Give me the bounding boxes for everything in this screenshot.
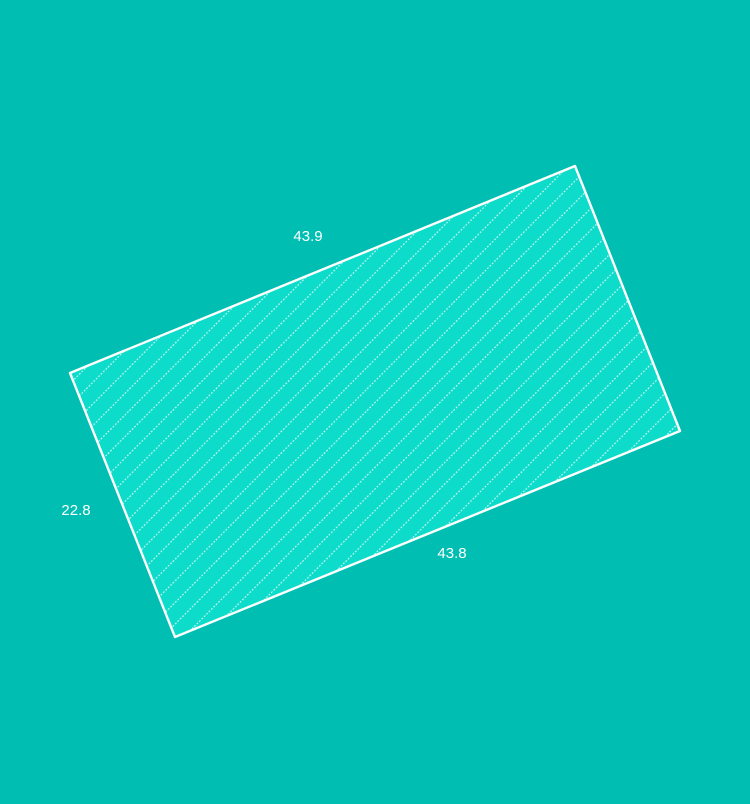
parcel-figure: 43.9 22.8 43.8 — [0, 0, 750, 804]
dimension-label-bottom: 43.8 — [437, 545, 466, 562]
canvas: 43.9 22.8 43.8 — [0, 0, 750, 804]
dimension-label-left: 22.8 — [61, 502, 90, 519]
dimension-label-top: 43.9 — [293, 228, 322, 245]
